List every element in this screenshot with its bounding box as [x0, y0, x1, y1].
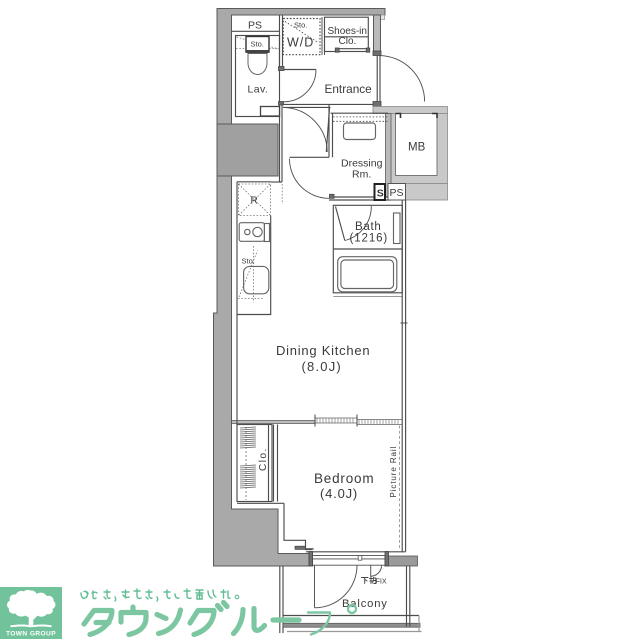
svg-text:PS: PS — [248, 20, 262, 32]
svg-text:(8.0J): (8.0J) — [302, 359, 342, 374]
svg-text:Bedroom: Bedroom — [314, 471, 374, 486]
svg-text:W/D: W/D — [287, 36, 314, 50]
svg-text:(4.0J): (4.0J) — [320, 486, 358, 501]
svg-text:(1216): (1216) — [350, 233, 389, 245]
svg-text:S: S — [377, 188, 384, 200]
svg-text:Clo.: Clo. — [339, 36, 357, 47]
svg-text:Sto.: Sto. — [251, 40, 264, 49]
svg-text:MB: MB — [408, 142, 426, 154]
svg-text:FIX: FIX — [376, 577, 387, 586]
svg-text:TOWN GROUP: TOWN GROUP — [6, 631, 56, 638]
svg-text:Entrance: Entrance — [325, 82, 373, 96]
svg-text:Picture Rail: Picture Rail — [389, 446, 398, 498]
svg-text:Clo.: Clo. — [258, 447, 269, 471]
svg-text:Rm.: Rm. — [352, 169, 371, 181]
svg-text:Bath: Bath — [355, 221, 381, 233]
svg-text:Lav.: Lav. — [248, 84, 269, 96]
svg-text:R: R — [251, 196, 258, 207]
svg-text:Dining Kitchen: Dining Kitchen — [276, 343, 370, 358]
svg-text:PS: PS — [390, 187, 404, 199]
svg-text:Sto.: Sto. — [294, 21, 307, 30]
svg-text:Sto.: Sto. — [242, 257, 255, 266]
